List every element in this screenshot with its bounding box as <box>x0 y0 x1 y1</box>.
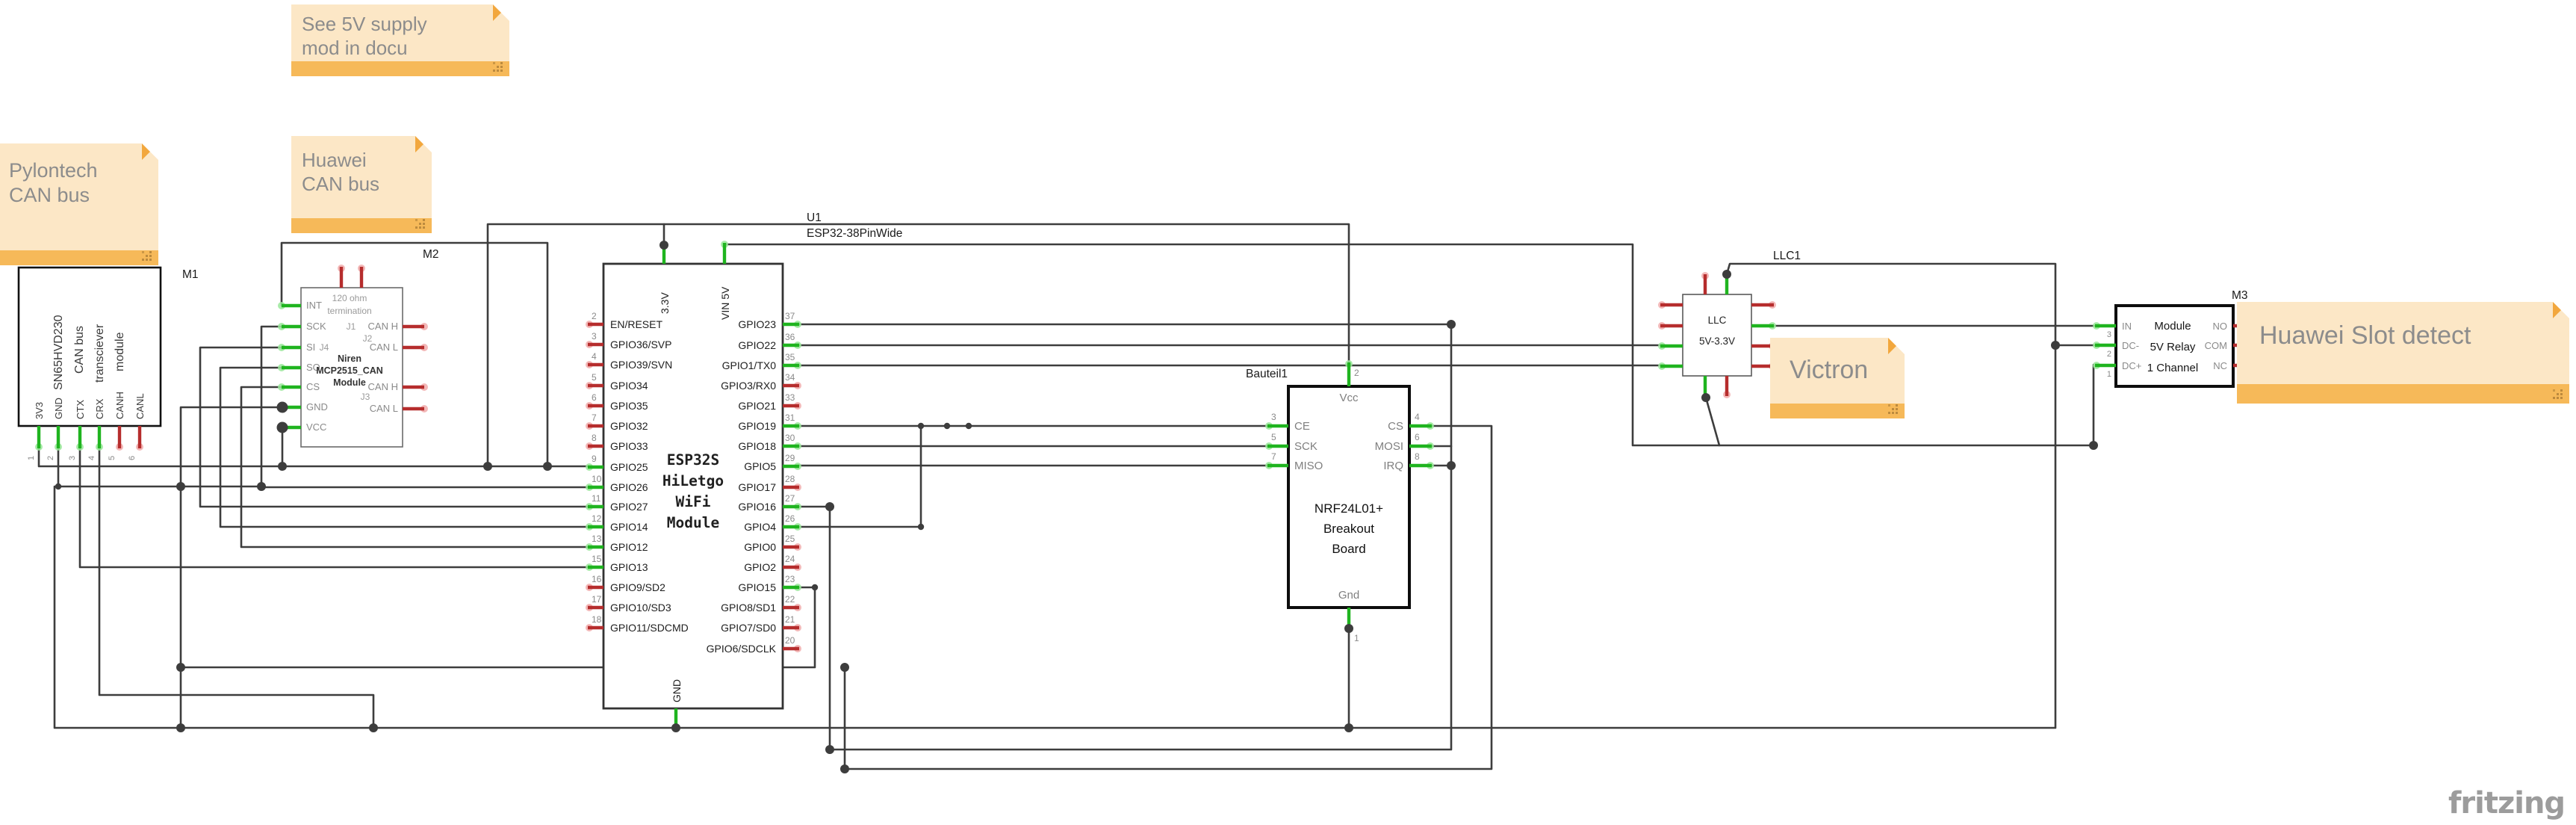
pin-number: 15 <box>592 554 602 564</box>
module-note: 120 ohm <box>332 293 367 303</box>
note-title-bar[interactable] <box>291 61 509 76</box>
pin-label: CE <box>1294 420 1310 433</box>
module-note: J4 <box>320 342 329 353</box>
pin-label: CANL <box>134 393 146 419</box>
pin-number: 1 <box>1354 633 1359 643</box>
pin-number: 2 <box>1354 368 1359 378</box>
module-note: J1 <box>347 321 356 332</box>
pin-label: GPIO23 <box>738 318 776 330</box>
sticky-note-huawei-can[interactable]: Huawei CAN bus <box>291 136 432 233</box>
pin-label: VCC <box>306 421 326 433</box>
pin-label: NC <box>2213 360 2227 371</box>
pin-label: GPIO36/SVP <box>610 339 671 350</box>
note-title-bar[interactable] <box>291 218 432 233</box>
wire-junction <box>671 723 680 732</box>
component-label-llc1[interactable]: LLC1 <box>1773 250 1801 262</box>
pin-number: 31 <box>785 412 795 423</box>
pin-label: Vcc <box>1339 392 1359 404</box>
wire-junction <box>918 423 924 429</box>
pin-number: 4 <box>592 351 597 362</box>
wire-junction <box>812 584 818 590</box>
pin-number: 30 <box>785 433 795 443</box>
wire[interactable] <box>99 448 373 728</box>
pin-label: GPIO5 <box>744 460 776 472</box>
component-label-m2[interactable]: M2 <box>423 248 439 261</box>
module-title: CAN bus <box>73 326 86 374</box>
note-text-line: Huawei Slot detect <box>2259 320 2569 351</box>
pin-label: MOSI <box>1375 440 1403 453</box>
wire-junction <box>278 462 287 471</box>
pin-number: 8 <box>592 433 597 443</box>
pin-label: GPIO21 <box>738 400 776 412</box>
pin-number: 37 <box>785 311 795 321</box>
pin-number: 21 <box>785 614 795 625</box>
note-text-line: Pylontech <box>9 158 158 183</box>
pin-number: 5 <box>108 456 117 460</box>
pin-number: 10 <box>592 474 602 484</box>
pin-number: 18 <box>592 614 602 625</box>
pin-label: IRQ <box>1383 460 1403 472</box>
module-title: transciever <box>93 324 106 383</box>
pin-number: 20 <box>785 635 795 646</box>
wire-junction <box>1701 393 1710 402</box>
pin-label: GPIO6/SDCLK <box>707 643 777 655</box>
wire-junction <box>2051 341 2060 350</box>
pin-label: GPIO16 <box>738 501 776 513</box>
note-text-line: See 5V supply <box>302 12 509 36</box>
pin-label: GPIO1/TX0 <box>722 359 777 371</box>
pin-label: CAN L <box>370 342 398 353</box>
pin-label: CAN L <box>370 403 398 414</box>
pin-label: SI <box>306 342 315 353</box>
pin-label: COM <box>2205 340 2227 351</box>
pin-label: GPIO18 <box>738 440 776 452</box>
wire[interactable] <box>220 368 588 527</box>
pin-number: 1 <box>2107 370 2111 379</box>
pin-label: GPIO26 <box>610 481 648 493</box>
wire-junction <box>277 422 288 433</box>
pin-label: GND <box>53 398 64 419</box>
pin-label: GPIO0 <box>744 541 776 553</box>
pin-label: IN <box>2122 321 2132 332</box>
module-note: J2 <box>363 333 373 344</box>
pin-number: 11 <box>592 493 601 504</box>
wire[interactable] <box>799 426 921 527</box>
pin-label: CS <box>306 381 320 392</box>
pin-label: GND <box>306 401 328 412</box>
pin-label: GPIO11/SDCMD <box>610 622 689 634</box>
note-text-line: Huawei <box>302 148 432 172</box>
pin-label: GPIO8/SD1 <box>721 602 776 614</box>
sticky-note-5v-supply[interactable]: See 5V supply mod in docu <box>291 4 509 76</box>
pin-label: GPIO27 <box>610 501 648 513</box>
pin-number: 6 <box>128 456 137 460</box>
note-fold-icon <box>493 4 509 21</box>
pin-number: 8 <box>1415 451 1420 462</box>
wire-junction <box>1447 461 1456 470</box>
component-label-m3[interactable]: M3 <box>2232 289 2248 302</box>
pin-number: 27 <box>785 493 795 504</box>
module-title: MCP2515_CAN <box>316 365 383 376</box>
pin-number: 17 <box>592 594 602 605</box>
module-title: SN65HVD230 <box>52 315 65 390</box>
pin-number: 36 <box>785 332 795 342</box>
pin-number: 25 <box>785 534 795 544</box>
wire-junction <box>1344 624 1353 633</box>
module-title: Board <box>1332 542 1365 556</box>
module-title: 5V Relay <box>2150 341 2196 353</box>
wire-junction <box>1722 270 1731 279</box>
pin-number: 3 <box>68 456 77 460</box>
note-grip-dots-icon <box>423 226 425 229</box>
pin-number: 16 <box>592 574 602 584</box>
module-title: HiLetgo <box>662 472 724 489</box>
wire-junction <box>1344 723 1353 732</box>
module-title: 1 Channel <box>2147 362 2198 374</box>
module-title: WiFi <box>676 493 711 510</box>
note-title-bar[interactable] <box>2237 384 2569 404</box>
wire-junction <box>2089 441 2098 450</box>
pin-number: 35 <box>785 352 795 362</box>
pin-label: GPIO35 <box>610 400 648 412</box>
wire-junction <box>840 764 849 773</box>
pin-label: CTX <box>75 400 86 419</box>
pin-number: 6 <box>1415 432 1420 442</box>
pin-number: 3 <box>1271 412 1276 422</box>
pin-label: GND <box>671 679 683 702</box>
pin-number: 29 <box>785 453 795 463</box>
pin-number: 7 <box>592 412 597 423</box>
pin-number: 2 <box>592 311 597 321</box>
pin-number: 28 <box>785 474 795 484</box>
pin-label: GPIO7/SD0 <box>721 622 776 634</box>
pin-number: 3 <box>592 331 597 342</box>
sticky-note-victron[interactable]: Victron <box>1770 338 1905 418</box>
wire-junction <box>918 524 924 530</box>
module-title: NRF24L01+ <box>1315 501 1383 516</box>
pin-label: GPIO3/RX0 <box>721 380 776 392</box>
module-title: Niren <box>338 353 361 364</box>
pin-label: GPIO19 <box>738 420 776 432</box>
note-fold-icon <box>142 143 158 160</box>
pin-label: CS <box>1388 420 1403 433</box>
wire-junction <box>944 423 950 429</box>
note-title-bar[interactable] <box>0 250 158 265</box>
pin-number: 26 <box>785 513 795 524</box>
pin-label: CANH <box>114 392 125 419</box>
pin-label: DC+ <box>2122 360 2141 371</box>
pin-number: 13 <box>592 534 602 544</box>
pin-label: INT <box>306 300 322 311</box>
pin-label: GPIO10/SD3 <box>610 602 671 614</box>
component-label-bauteil1[interactable]: Bauteil1 <box>1246 368 1288 380</box>
pin-number: 22 <box>785 594 795 605</box>
pin-number: 1 <box>27 456 36 460</box>
note-text-line: CAN bus <box>302 172 432 196</box>
pin-label: GPIO9/SD2 <box>610 581 665 593</box>
pin-number: 4 <box>87 456 96 460</box>
pin-label: GPIO15 <box>738 581 776 593</box>
pin-label: GPIO14 <box>610 521 648 533</box>
note-grip-dots-icon <box>1896 412 1898 414</box>
note-title-bar[interactable] <box>1770 404 1905 418</box>
module-title: Breakout <box>1323 522 1374 536</box>
wire-junction <box>1447 320 1456 329</box>
wire-junction <box>659 241 668 250</box>
wire-junction <box>840 663 849 672</box>
note-text-line: Victron <box>1790 354 1905 386</box>
pin-label: DC- <box>2122 340 2139 351</box>
pin-label: GPIO12 <box>610 541 648 553</box>
pin-label: GPIO33 <box>610 440 648 452</box>
component-label-m1[interactable]: M1 <box>182 268 199 281</box>
wire-junction <box>543 462 552 471</box>
wire-junction <box>176 482 185 491</box>
component-label-u1-type[interactable]: ESP32-38PinWide <box>807 227 902 240</box>
note-fold-icon <box>415 136 432 152</box>
wire-junction <box>277 402 288 413</box>
pin-number: 5 <box>1271 432 1276 442</box>
fritzing-watermark: fritzing <box>2448 786 2565 821</box>
pin-label: GPIO13 <box>610 561 648 573</box>
module-note: J3 <box>361 392 370 402</box>
pin-label: SCK <box>1294 440 1318 453</box>
pin-number: 5 <box>592 372 597 383</box>
schematic-svg[interactable]: 13V32GND3CTX4CRX5CANH6CANLSN65HVD230CAN … <box>0 0 2576 825</box>
wire-junction <box>176 723 185 732</box>
pin-number: 6 <box>592 392 597 403</box>
note-text-line: CAN bus <box>9 183 158 208</box>
pin-number: 23 <box>785 574 795 584</box>
pin-number: 3 <box>2107 330 2111 339</box>
module-title: Module <box>333 377 366 388</box>
pin-label: 3V3 <box>34 402 45 419</box>
pin-label: CRX <box>94 398 105 419</box>
wire[interactable] <box>1706 398 1719 445</box>
pin-label: GPIO32 <box>610 420 648 432</box>
pin-number: 34 <box>785 372 795 383</box>
module-note: termination <box>327 306 371 316</box>
wire-junction <box>369 723 378 732</box>
pin-label: CAN H <box>368 381 398 392</box>
pin-label: GPIO39/SVN <box>610 359 672 371</box>
note-grip-dots-icon <box>500 69 503 72</box>
pin-number: 7 <box>1271 451 1276 462</box>
pin-number: 12 <box>592 513 602 524</box>
wire-junction <box>966 423 972 429</box>
wire-junction <box>257 482 266 491</box>
pin-label: SCK <box>306 321 326 332</box>
pin-number: 33 <box>785 392 795 403</box>
pin-label: GPIO4 <box>744 521 776 533</box>
wire-junction <box>55 483 61 489</box>
pin-label: MISO <box>1294 460 1323 472</box>
fritzing-schematic-page: { "watermark": {"text": "fritzing"}, "no… <box>0 0 2576 825</box>
sticky-note-pylontech[interactable]: Pylontech CAN bus <box>0 143 158 265</box>
pin-label: Gnd <box>1338 589 1359 602</box>
pin-label: GPIO17 <box>738 481 776 493</box>
pin-label: NO <box>2213 321 2228 332</box>
wire-junction <box>483 462 492 471</box>
module-title: module <box>114 332 126 371</box>
wire-junction <box>825 502 834 511</box>
pin-label: GPIO25 <box>610 461 648 473</box>
note-grip-dots-icon <box>2560 397 2563 399</box>
note-fold-icon <box>2553 302 2569 318</box>
note-text-line: mod in docu <box>302 36 509 60</box>
pin-label: CAN H <box>368 321 398 332</box>
pin-label: VIN 5V <box>719 286 731 320</box>
pin-number: 4 <box>1415 412 1420 422</box>
pin-label: GPIO34 <box>610 380 648 392</box>
module-title: ESP32S <box>667 451 719 469</box>
pin-number: 2 <box>2107 350 2111 359</box>
component-label-u1[interactable]: U1 <box>807 211 822 224</box>
module-title: LLC <box>1708 315 1727 326</box>
pin-label: EN/RESET <box>610 318 662 330</box>
note-fold-icon <box>1888 338 1905 354</box>
pin-number: 24 <box>785 554 795 564</box>
note-grip-dots-icon <box>149 259 152 261</box>
wire-junction <box>825 745 834 754</box>
wire-junction <box>176 663 185 672</box>
module-title: Module <box>2154 320 2191 333</box>
pin-label: 3.3V <box>659 292 671 314</box>
module-title: 5V-3.3V <box>1699 336 1735 347</box>
pin-number: 2 <box>46 456 55 460</box>
pin-number: 9 <box>592 454 597 464</box>
pin-label: GPIO22 <box>738 339 776 351</box>
module-title: Module <box>667 514 719 531</box>
sticky-note-huawei-slot[interactable]: Huawei Slot detect <box>2237 302 2569 404</box>
pin-label: GPIO2 <box>744 561 776 573</box>
wire[interactable] <box>39 448 588 466</box>
